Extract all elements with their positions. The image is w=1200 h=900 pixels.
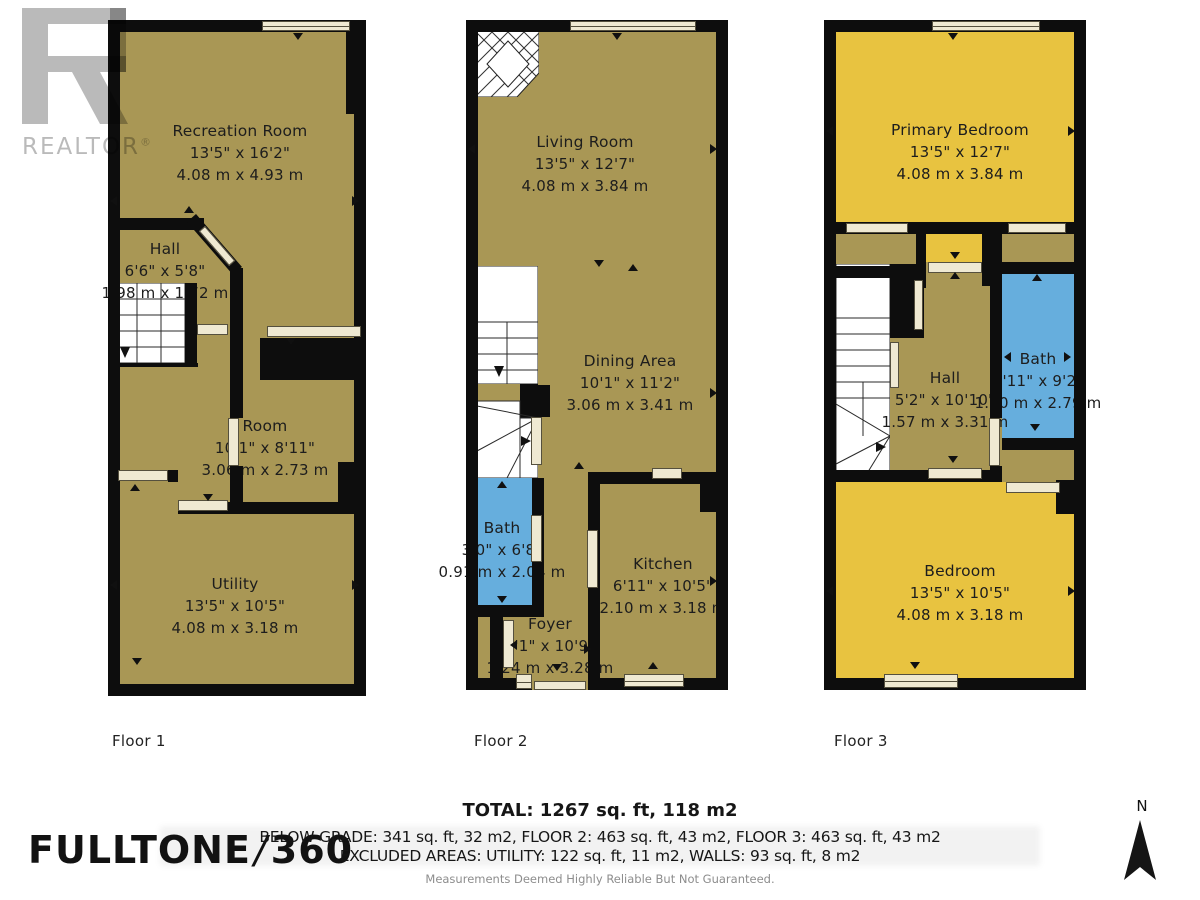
door-opening — [914, 280, 923, 330]
measure-arrow-icon — [628, 264, 638, 271]
room-size-metric: 3.06 m x 3.41 m — [567, 394, 694, 416]
measure-arrow-icon — [584, 644, 591, 654]
measure-arrow-icon — [110, 196, 117, 206]
room-size-metric: 2.10 m x 3.18 m — [600, 597, 727, 619]
measure-arrow-icon — [710, 576, 717, 586]
door-opening — [587, 530, 598, 588]
wall — [490, 617, 503, 690]
wall — [338, 462, 366, 502]
excluded-areas-text: EXCLUDED AREAS: UTILITY: 122 sq. ft, 11 … — [0, 847, 1200, 865]
door-opening — [267, 326, 361, 337]
measure-arrow-icon — [184, 206, 194, 213]
door-opening — [1006, 482, 1060, 493]
measure-arrow-icon — [1064, 352, 1071, 362]
measure-arrow-icon — [497, 596, 507, 603]
realtor-r-icon — [22, 8, 132, 124]
room-name: Bath — [439, 517, 566, 539]
measure-arrow-icon — [1032, 274, 1042, 281]
measure-arrow-icon — [1030, 424, 1040, 431]
measure-arrow-icon — [948, 33, 958, 40]
measure-arrow-icon — [826, 126, 833, 136]
room-size-metric: 4.08 m x 3.18 m — [897, 604, 1024, 626]
registered-mark: ® — [140, 135, 153, 148]
floor-1-caption: Floor 1 — [112, 732, 166, 750]
measure-arrow-icon — [612, 33, 622, 40]
room-size-imperial: 3'0" x 6'8" — [439, 539, 566, 561]
wall — [466, 20, 478, 690]
realtor-logo: REALTOR® — [22, 8, 153, 160]
room-label-bedroom: Bedroom 13'5" x 10'5" 4.08 m x 3.18 m — [897, 560, 1024, 626]
open-area-hatch-icon — [477, 31, 539, 97]
measure-arrow-icon — [1004, 352, 1011, 362]
measure-arrow-icon — [1068, 126, 1075, 136]
floor-2-caption: Floor 2 — [474, 732, 528, 750]
room-label-dining-area: Dining Area 10'1" x 11'2" 3.06 m x 3.41 … — [567, 350, 694, 416]
window — [262, 21, 350, 31]
measure-arrow-icon — [826, 586, 833, 596]
floor-2-plan: Living Room 13'5" x 12'7" 4.08 m x 3.84 … — [466, 20, 728, 690]
realtor-text: REALTOR — [22, 134, 140, 160]
measure-arrow-icon — [510, 640, 517, 650]
floor-3-caption: Floor 3 — [834, 732, 888, 750]
window — [516, 674, 532, 689]
measure-arrow-icon — [293, 33, 303, 40]
staircase-icon — [477, 266, 538, 478]
measure-arrow-icon — [648, 662, 658, 669]
room-size-metric: 1.98 m x 1.72 m — [102, 282, 229, 304]
room-size-imperial: 13'5" x 12'7" — [522, 153, 649, 175]
room-size-metric: 4.08 m x 4.93 m — [173, 164, 308, 186]
room-size-imperial: 10'1" x 11'2" — [567, 372, 694, 394]
door-opening — [846, 223, 908, 233]
wall — [990, 274, 1002, 418]
wall — [260, 338, 366, 380]
window — [884, 674, 958, 688]
door-opening — [652, 468, 682, 479]
room-size-imperial: 6'6" x 5'8" — [102, 260, 229, 282]
measure-arrow-icon — [950, 252, 960, 259]
measure-arrow-icon — [552, 664, 562, 671]
measure-arrow-icon — [948, 456, 958, 463]
door-opening — [228, 418, 239, 466]
room-label-recreation-room: Recreation Room 13'5" x 16'2" 4.08 m x 4… — [173, 120, 308, 186]
door-opening — [178, 500, 228, 511]
total-area-text: TOTAL: 1267 sq. ft, 118 m2 — [0, 800, 1200, 821]
wall — [716, 20, 728, 690]
room-label-primary-bedroom: Primary Bedroom 13'5" x 12'7" 4.08 m x 3… — [891, 119, 1029, 185]
room-name: Primary Bedroom — [891, 119, 1029, 141]
measure-arrow-icon — [574, 462, 584, 469]
room-name: Dining Area — [567, 350, 694, 372]
disclaimer-text: Measurements Deemed Highly Reliable But … — [0, 872, 1200, 886]
room-size-metric: 4.08 m x 3.18 m — [172, 617, 299, 639]
window — [624, 674, 684, 687]
realtor-wordmark: REALTOR® — [22, 134, 153, 160]
room-size-metric: 4.08 m x 3.84 m — [891, 163, 1029, 185]
door-opening — [531, 417, 542, 465]
measure-arrow-icon — [352, 580, 359, 590]
measure-arrow-icon — [594, 260, 604, 267]
room-size-imperial: 6'11" x 10'5" — [600, 575, 727, 597]
door-opening — [118, 470, 168, 481]
measure-arrow-icon — [710, 388, 717, 398]
room-size-metric: 0.91 m x 2.04 m — [439, 561, 566, 583]
area-breakdown-text: BELOW GRADE: 341 sq. ft, 32 m2, FLOOR 2:… — [0, 828, 1200, 846]
door-opening — [928, 468, 982, 479]
measure-arrow-icon — [352, 196, 359, 206]
wall — [185, 283, 197, 367]
measure-arrow-icon — [130, 484, 140, 491]
wall — [113, 363, 198, 367]
window — [570, 21, 696, 31]
room-name: Utility — [172, 573, 299, 595]
door-opening — [989, 418, 1000, 466]
room-name: Room — [202, 415, 329, 437]
room-size-imperial: 13'5" x 16'2" — [173, 142, 308, 164]
measure-arrow-icon — [286, 338, 296, 345]
room-size-metric: 4.08 m x 3.84 m — [522, 175, 649, 197]
measure-arrow-icon — [110, 580, 117, 590]
measure-arrow-icon — [132, 658, 142, 665]
room-label-bath: Bath 3'0" x 6'8" 0.91 m x 2.04 m — [439, 517, 566, 583]
wall — [230, 268, 243, 418]
wall — [538, 385, 550, 417]
wall — [168, 470, 178, 482]
room-label-utility: Utility 13'5" x 10'5" 4.08 m x 3.18 m — [172, 573, 299, 639]
room-label-room: Room 10'1" x 8'11" 3.06 m x 2.73 m — [202, 415, 329, 481]
floor-3-plan: Primary Bedroom 13'5" x 12'7" 4.08 m x 3… — [824, 20, 1086, 690]
wall — [1002, 262, 1074, 274]
door-opening — [534, 681, 586, 690]
measure-arrow-icon — [950, 272, 960, 279]
room-name: Recreation Room — [173, 120, 308, 142]
room-size-imperial: 13'5" x 10'5" — [897, 582, 1024, 604]
door-opening — [890, 342, 899, 388]
measure-arrow-icon — [497, 481, 507, 488]
wall — [1074, 20, 1086, 690]
room-label-kitchen: Kitchen 6'11" x 10'5" 2.10 m x 3.18 m — [600, 553, 727, 619]
window — [932, 21, 1040, 31]
door-opening — [1008, 223, 1066, 233]
wall — [1002, 438, 1074, 450]
door-opening — [197, 324, 228, 335]
floor-plan-canvas: REALTOR® — [0, 0, 1200, 900]
room-label-living-room: Living Room 13'5" x 12'7" 4.08 m x 3.84 … — [522, 131, 649, 197]
wall — [108, 684, 366, 696]
measure-arrow-icon — [203, 494, 213, 501]
door-opening — [531, 515, 542, 562]
room-size-metric: 3.06 m x 2.73 m — [202, 459, 329, 481]
room-name: Kitchen — [600, 553, 727, 575]
measure-arrow-icon — [910, 662, 920, 669]
room-size-imperial: 13'5" x 12'7" — [891, 141, 1029, 163]
measure-arrow-icon — [1068, 586, 1075, 596]
measure-arrow-icon — [710, 144, 717, 154]
room-size-imperial: 10'1" x 8'11" — [202, 437, 329, 459]
wall — [700, 484, 728, 512]
measure-arrow-icon — [468, 144, 475, 154]
room-size-imperial: 13'5" x 10'5" — [172, 595, 299, 617]
room-name: Living Room — [522, 131, 649, 153]
wall — [466, 605, 544, 617]
wall — [346, 20, 366, 114]
room-name: Bedroom — [897, 560, 1024, 582]
